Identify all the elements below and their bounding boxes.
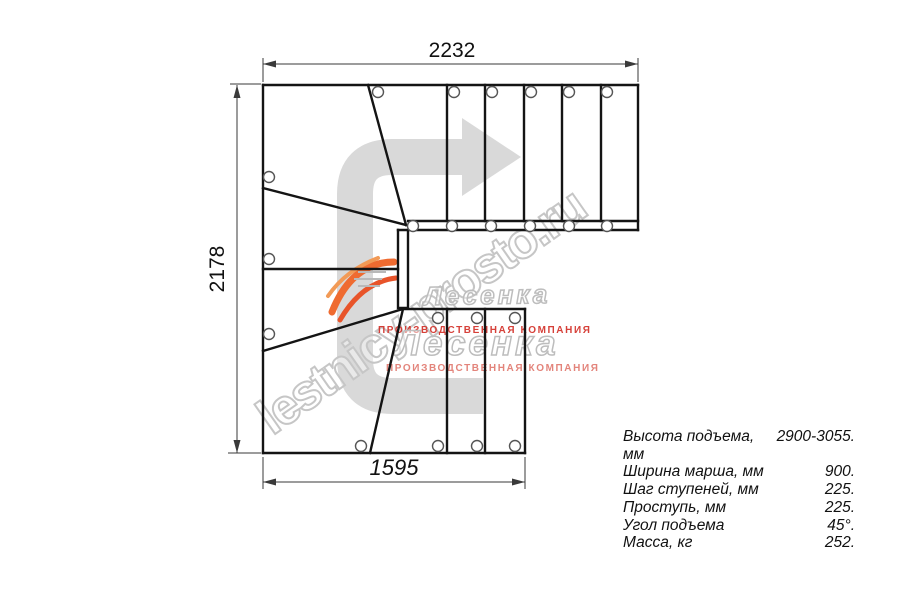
hole-marker-icon [264, 254, 275, 265]
spec-value: 2900-3055. [777, 428, 855, 463]
hole-marker-icon [602, 221, 613, 232]
spec-table: Высота подъема, мм 2900-3055. Ширина мар… [623, 428, 855, 552]
dimension-left: 2178 [206, 84, 261, 453]
hole-marker-icon [510, 313, 521, 324]
hole-marker-icon [564, 87, 575, 98]
dimension-left-value: 2178 [206, 246, 229, 293]
spec-label: Высота подъема, мм [623, 428, 777, 463]
hole-marker-icon [564, 221, 575, 232]
spec-label: Проступь, мм [623, 499, 726, 517]
spec-row: Ширина марша, мм 900. [623, 463, 855, 481]
hole-marker-icon [373, 87, 384, 98]
dim-arrowhead-left [263, 61, 276, 68]
hole-marker-icon [433, 441, 444, 452]
spec-value: 45°. [827, 517, 855, 535]
hole-marker-icon [526, 87, 537, 98]
spec-row: Высота подъема, мм 2900-3055. [623, 428, 855, 463]
dim-arrowhead-right [625, 61, 638, 68]
spec-label: Шаг ступеней, мм [623, 481, 759, 499]
hole-marker-icon [602, 87, 613, 98]
step-lines [263, 85, 601, 453]
hole-marker-icon [447, 221, 458, 232]
spec-value: 225. [825, 481, 855, 499]
dim-arrowhead-left [263, 479, 276, 486]
dim-arrowhead-right [512, 479, 525, 486]
hole-marker-icon [356, 441, 367, 452]
corner-stringer [398, 230, 408, 308]
staircase-drawing-page: lestnicy-prosto.ru Лесенка ПРОИЗВОДСТВЕН… [0, 0, 900, 600]
spec-label: Ширина марша, мм [623, 463, 764, 481]
dim-arrowhead-up [234, 85, 241, 98]
dim-arrowhead-down [234, 440, 241, 453]
hole-marker-icon [487, 87, 498, 98]
hole-marker-icon [472, 441, 483, 452]
spec-row: Проступь, мм 225. [623, 499, 855, 517]
spec-label: Масса, кг [623, 534, 692, 552]
dimension-bottom-value: 1595 [370, 455, 420, 480]
hole-marker-icon [408, 221, 419, 232]
winder-line [368, 85, 406, 225]
spec-value: 900. [825, 463, 855, 481]
hole-marker-icon [510, 441, 521, 452]
spec-value: 225. [825, 499, 855, 517]
spec-row: Угол подъема 45°. [623, 517, 855, 535]
hole-marker-icon [264, 329, 275, 340]
hole-marker-icon [264, 172, 275, 183]
hole-marker-icon [486, 221, 497, 232]
spec-row: Шаг ступеней, мм 225. [623, 481, 855, 499]
winder-line [370, 309, 403, 453]
dimension-top: 2232 [263, 39, 638, 82]
winder-line [263, 309, 403, 351]
hole-marker-icon [449, 87, 460, 98]
winder-line [263, 188, 406, 225]
hole-marker-icon [472, 313, 483, 324]
spec-label: Угол подъема [623, 517, 724, 535]
dimension-top-value: 2232 [429, 39, 476, 62]
hole-marker-icon [525, 221, 536, 232]
hole-marker-icon [433, 313, 444, 324]
spec-row: Масса, кг 252. [623, 534, 855, 552]
spec-value: 252. [825, 534, 855, 552]
dimension-bottom: 1595 [263, 455, 525, 489]
